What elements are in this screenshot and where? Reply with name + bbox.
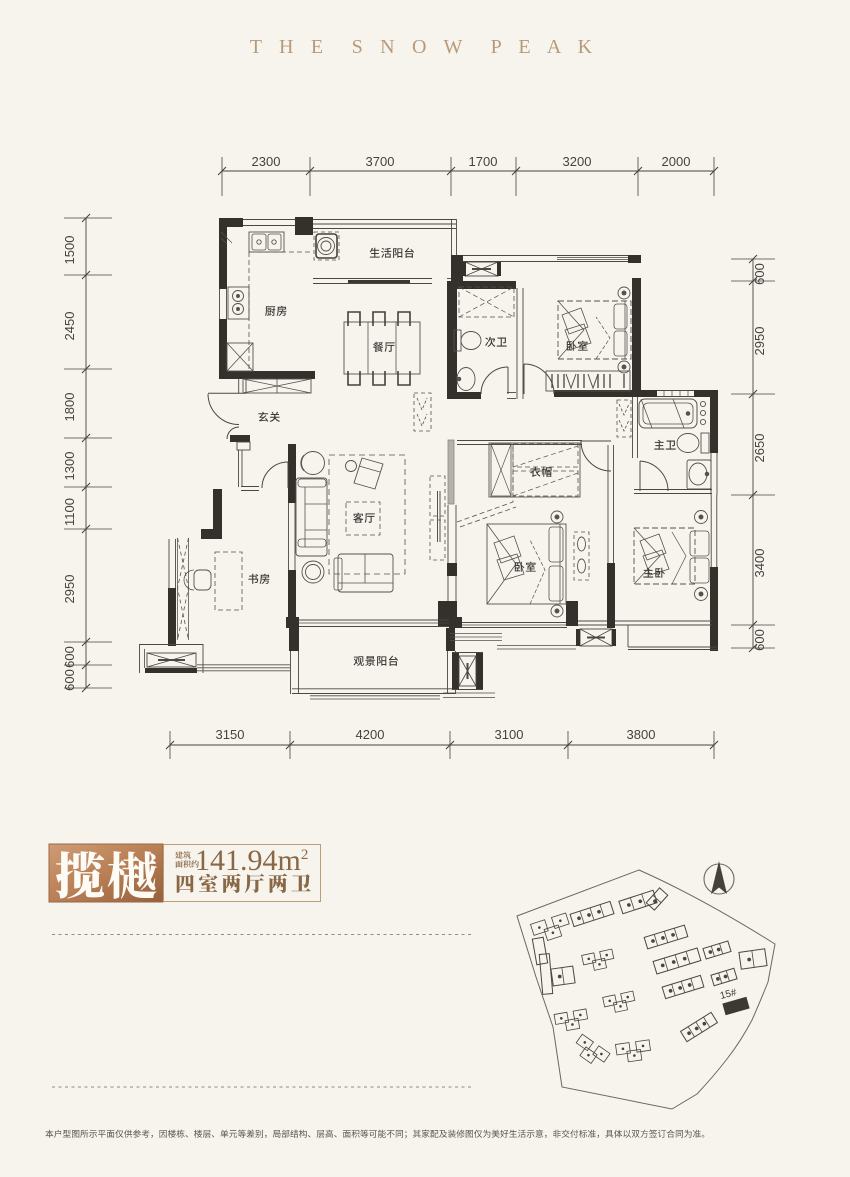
- svg-text:1500: 1500: [62, 236, 77, 265]
- svg-text:3150: 3150: [216, 727, 245, 742]
- svg-text:2950: 2950: [752, 327, 767, 356]
- svg-text:141.94m2: 141.94m2: [195, 844, 308, 877]
- svg-text:1100: 1100: [62, 498, 77, 526]
- svg-text:3100: 3100: [495, 727, 524, 742]
- svg-text:600: 600: [752, 263, 767, 285]
- svg-text:3700: 3700: [366, 154, 395, 169]
- svg-text:1300: 1300: [62, 452, 77, 481]
- svg-text:2950: 2950: [62, 575, 77, 604]
- svg-text:2450: 2450: [62, 312, 77, 341]
- svg-text:1800: 1800: [62, 393, 77, 422]
- svg-text:3200: 3200: [563, 154, 592, 169]
- svg-text:2300: 2300: [252, 154, 281, 169]
- svg-text:T H E S N O W P E A K: T H E S N O W P E A K: [250, 36, 599, 58]
- svg-text:600: 600: [62, 669, 77, 691]
- svg-text:3800: 3800: [627, 727, 656, 742]
- svg-text:3400: 3400: [752, 549, 767, 578]
- svg-text:4200: 4200: [356, 727, 385, 742]
- svg-text:2650: 2650: [752, 434, 767, 463]
- svg-text:2000: 2000: [662, 154, 691, 169]
- svg-text:1700: 1700: [469, 154, 498, 169]
- svg-text:600: 600: [752, 629, 767, 651]
- svg-text:600: 600: [62, 646, 77, 668]
